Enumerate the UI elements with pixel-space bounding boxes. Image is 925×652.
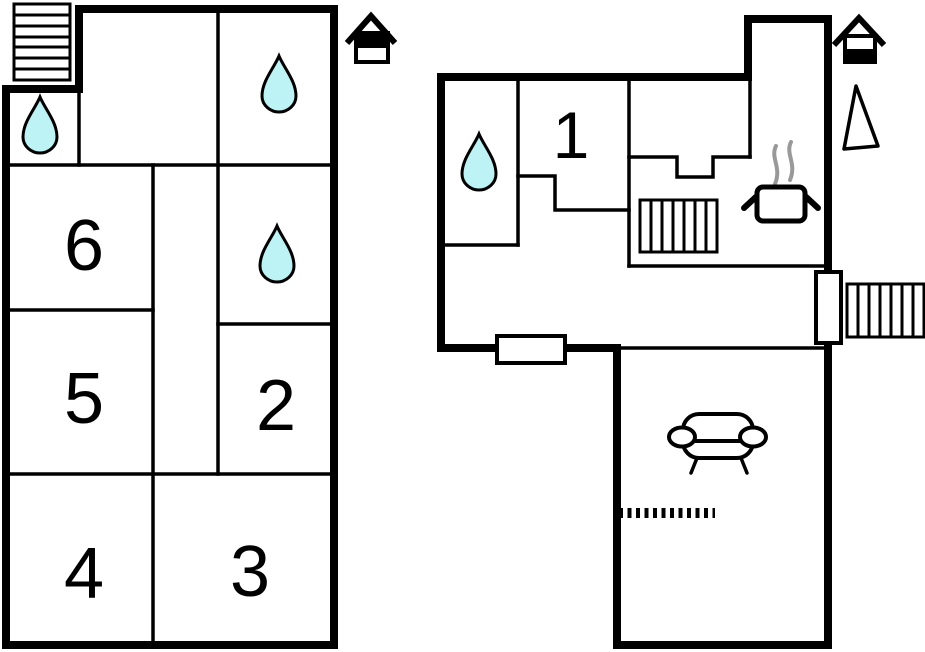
- ground-plan: [441, 18, 924, 645]
- north-arrow-icon: [844, 86, 878, 149]
- ground-plan-outer-walls: [441, 19, 828, 645]
- water-drop-icon: [462, 134, 496, 190]
- window-symbol: [497, 336, 565, 363]
- sofa-armrest-right: [740, 428, 766, 447]
- water-drop-icon: [262, 56, 296, 112]
- water-drop-icon: [260, 226, 294, 282]
- pot-body: [757, 187, 805, 221]
- floorplan-drawing: [0, 0, 925, 652]
- wall-closet-bottom-notch: [629, 157, 750, 177]
- room-3-label: 3: [230, 536, 270, 608]
- sofa-armrest-left: [669, 428, 695, 447]
- steam-line: [774, 146, 777, 184]
- room-4-label: 4: [64, 538, 104, 610]
- room-6-label: 6: [64, 210, 104, 282]
- room-1-label: 1: [553, 102, 590, 168]
- sofa-icon: [669, 414, 766, 473]
- water-drop-icon: [23, 97, 57, 153]
- sofa-legs: [691, 458, 747, 473]
- steam-lines: [774, 142, 792, 184]
- stove-icon: [744, 142, 818, 221]
- exterior-staircase-icon: [14, 4, 70, 80]
- indoor-staircase-icon: [640, 200, 717, 252]
- floorplan-canvas: 6 5 4 3 2 1: [0, 0, 925, 652]
- outdoor-staircase-icon: [847, 284, 924, 337]
- steam-line: [789, 142, 792, 180]
- door-symbol: [816, 272, 841, 343]
- room-5-label: 5: [64, 363, 104, 435]
- wall-room1-bottom-step: [518, 176, 629, 210]
- entrance-icon: [347, 16, 395, 62]
- room-2-label: 2: [256, 370, 296, 442]
- entrance-icon: [834, 18, 884, 64]
